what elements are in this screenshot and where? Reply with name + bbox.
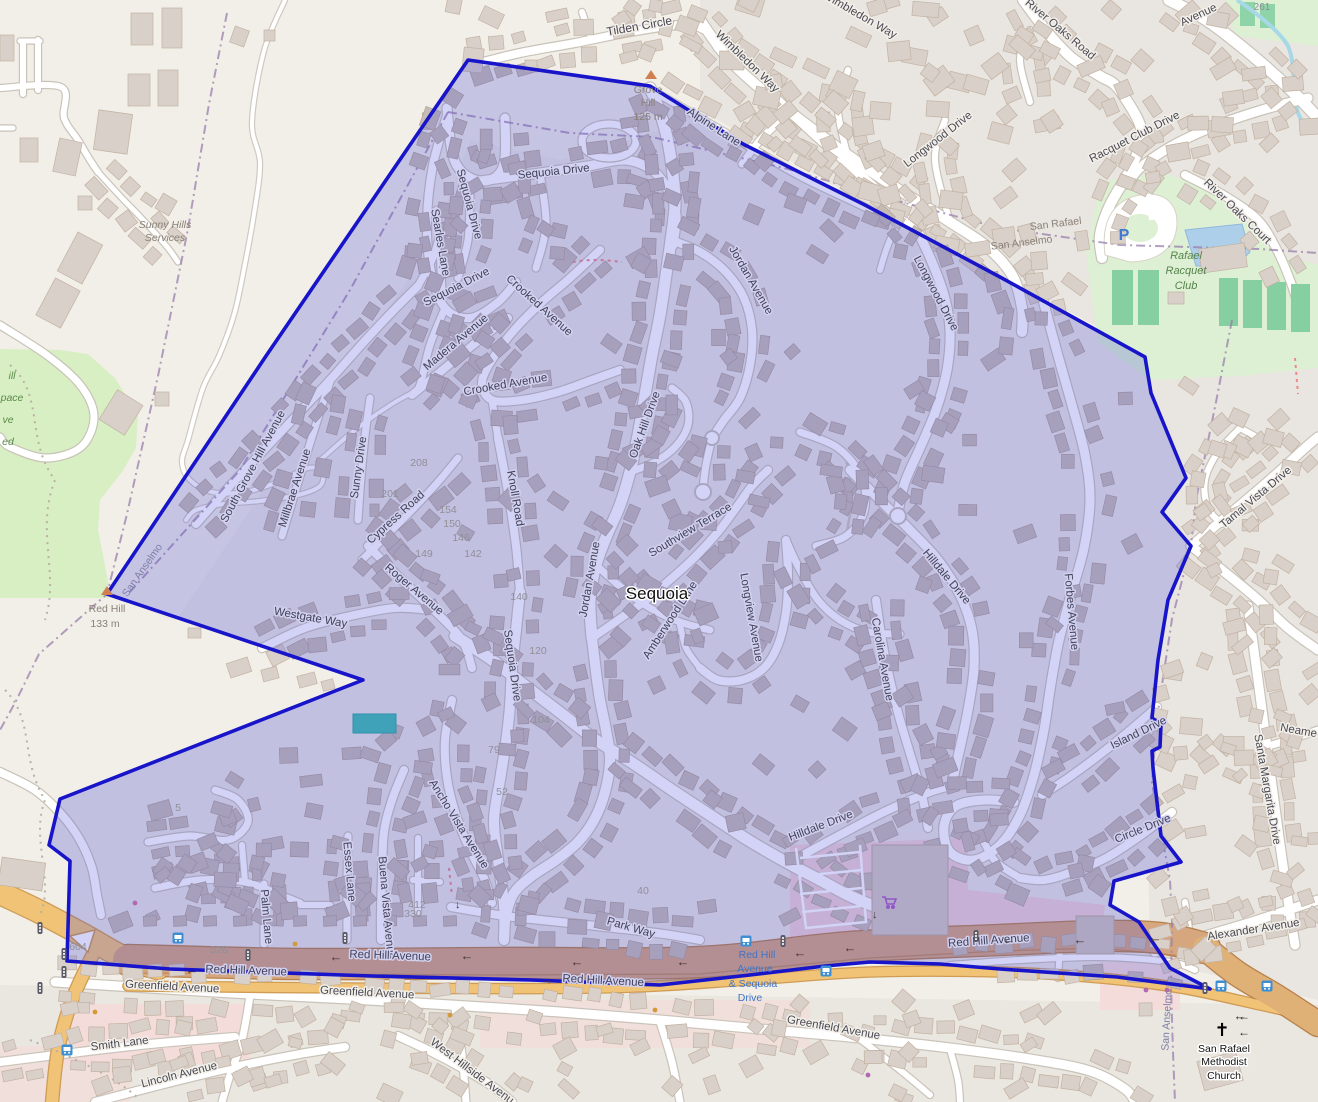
svg-text:201: 201 [381, 488, 399, 500]
svg-text:40: 40 [637, 885, 649, 897]
svg-text:Sunny Hills: Sunny Hills [139, 219, 192, 231]
svg-text:Club: Club [1175, 280, 1198, 292]
svg-text:Methodist: Methodist [1201, 1056, 1247, 1068]
svg-text:Hill: Hill [641, 97, 656, 109]
svg-text:Services: Services [145, 232, 186, 244]
svg-text:Grove: Grove [634, 84, 663, 96]
svg-text:526: 526 [210, 944, 228, 956]
svg-text:←: ← [571, 954, 584, 969]
svg-text:125 m: 125 m [633, 111, 662, 123]
svg-text:120: 120 [529, 645, 547, 657]
svg-text:pace: pace [0, 392, 24, 404]
svg-text:ve: ve [2, 414, 13, 426]
svg-text:←: ← [461, 948, 474, 963]
svg-text:←: ← [677, 954, 690, 969]
svg-text:79: 79 [488, 744, 500, 756]
svg-text:Avenue: Avenue [737, 963, 773, 975]
svg-text:Drive: Drive [738, 992, 763, 1004]
svg-text:261: 261 [1254, 2, 1271, 13]
svg-text:←: ← [1149, 930, 1162, 945]
svg-text:154: 154 [439, 504, 457, 516]
svg-text:←: ← [1003, 932, 1016, 947]
svg-text:52: 52 [496, 786, 508, 798]
svg-text:←: ← [1074, 932, 1087, 947]
svg-text:140: 140 [510, 591, 528, 603]
svg-text:✝: ✝ [1214, 1020, 1229, 1040]
svg-text:149: 149 [415, 548, 433, 560]
svg-text:→: → [541, 972, 554, 987]
svg-text:Racquet: Racquet [1166, 265, 1208, 277]
svg-text:↓: ↓ [872, 909, 878, 921]
svg-text:Red Hill: Red Hill [739, 949, 776, 961]
svg-text:150: 150 [443, 518, 461, 530]
svg-text:5: 5 [175, 802, 181, 814]
svg-text:& Sequoia: & Sequoia [729, 978, 778, 990]
svg-text:←: ← [186, 962, 199, 977]
svg-text:146: 146 [452, 532, 470, 544]
svg-text:San Rafael: San Rafael [1198, 1043, 1250, 1055]
svg-text:133 m: 133 m [90, 618, 119, 630]
svg-text:142: 142 [464, 548, 482, 560]
svg-text:604: 604 [69, 941, 87, 953]
svg-text:↓: ↓ [455, 899, 461, 911]
svg-text:←: ← [794, 945, 807, 960]
svg-text:208: 208 [410, 457, 428, 469]
svg-text:Red Hill: Red Hill [89, 603, 126, 615]
svg-text:ed: ed [2, 436, 15, 448]
svg-text:←: ← [330, 949, 343, 964]
svg-text:104: 104 [532, 714, 550, 726]
svg-text:Church: Church [1207, 1070, 1241, 1082]
svg-text:P: P [1119, 227, 1130, 244]
svg-text:Sequoia: Sequoia [626, 584, 689, 603]
svg-text:412: 412 [408, 899, 426, 911]
svg-text:←: ← [1238, 1025, 1250, 1039]
svg-text:Rafael: Rafael [1170, 250, 1202, 262]
svg-text:ill: ill [9, 370, 17, 382]
svg-text:←: ← [844, 940, 857, 955]
svg-text:←: ← [1234, 1008, 1247, 1023]
